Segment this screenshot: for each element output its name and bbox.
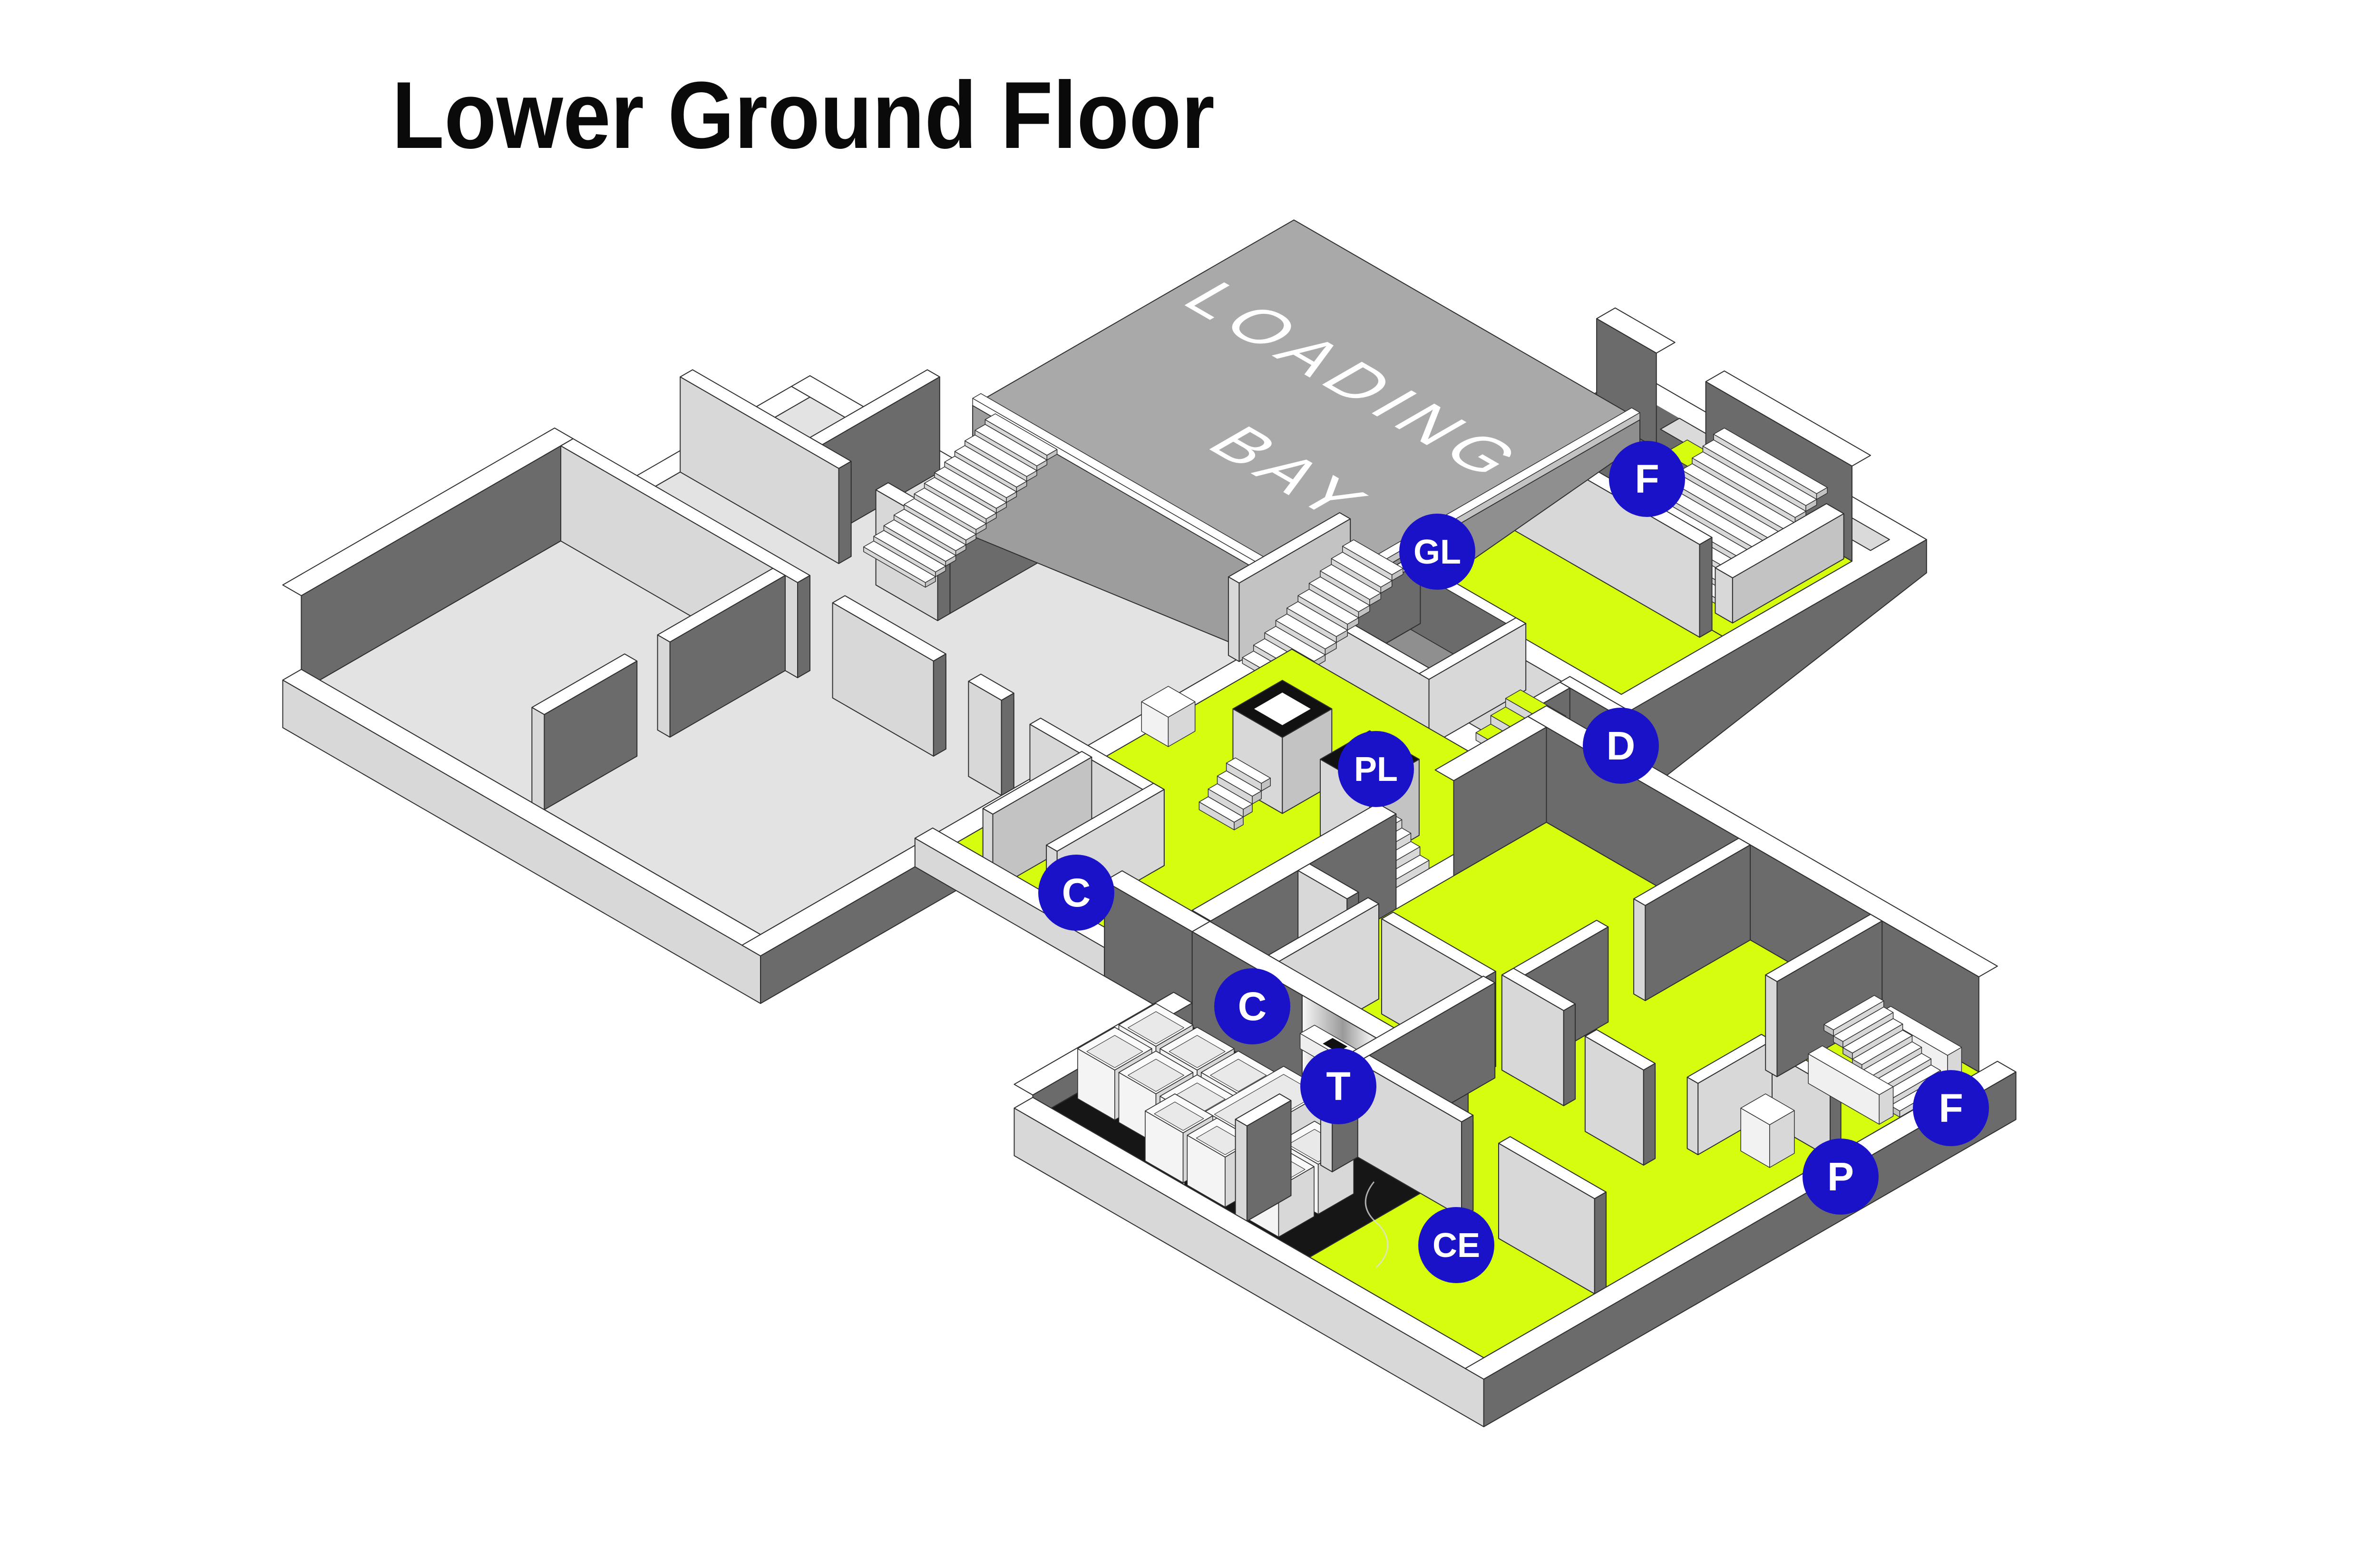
- svg-text:P: P: [1827, 1154, 1854, 1199]
- svg-text:CE: CE: [1433, 1227, 1480, 1265]
- svg-text:C: C: [1062, 870, 1091, 915]
- svg-text:PL: PL: [1354, 750, 1398, 789]
- svg-text:C: C: [1238, 984, 1267, 1029]
- svg-text:GL: GL: [1413, 533, 1461, 571]
- svg-text:F: F: [1635, 457, 1659, 501]
- svg-text:T: T: [1326, 1064, 1350, 1109]
- svg-text:F: F: [1939, 1086, 1963, 1130]
- svg-text:D: D: [1607, 723, 1636, 768]
